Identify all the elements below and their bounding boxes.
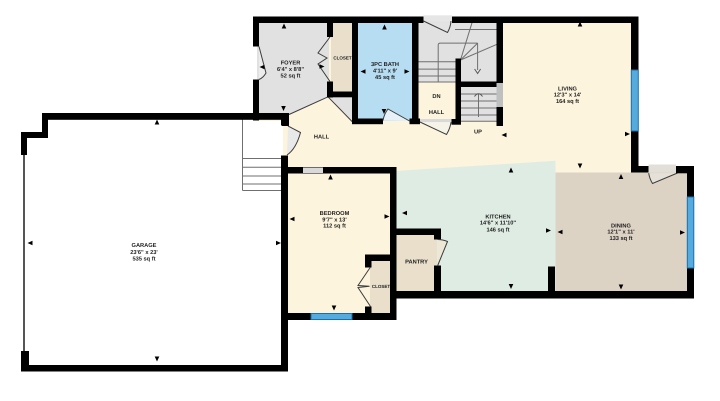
svg-text:133 sq ft: 133 sq ft (609, 235, 632, 242)
svg-text:KITCHEN: KITCHEN (485, 215, 510, 221)
svg-text:146 sq ft: 146 sq ft (486, 227, 509, 234)
svg-text:12'1" x 11': 12'1" x 11' (607, 230, 635, 236)
svg-text:14'6" x 11'10": 14'6" x 11'10" (480, 221, 517, 227)
svg-text:LIVING: LIVING (558, 86, 578, 92)
svg-text:FOYER: FOYER (281, 61, 301, 67)
svg-text:CLOSET: CLOSET (372, 284, 391, 289)
svg-text:9'7" x 13': 9'7" x 13' (322, 217, 347, 223)
svg-text:12'3" x 14': 12'3" x 14' (554, 93, 582, 99)
svg-text:HALL: HALL (314, 135, 330, 141)
svg-text:23'6" x 23': 23'6" x 23' (130, 250, 158, 256)
svg-text:3PC BATH: 3PC BATH (371, 62, 399, 68)
svg-text:BEDROOM: BEDROOM (320, 211, 350, 217)
svg-text:535 sq ft: 535 sq ft (132, 255, 155, 262)
svg-text:DN: DN (432, 94, 440, 100)
svg-text:45 sq ft: 45 sq ft (375, 74, 395, 81)
svg-text:CLOSET: CLOSET (333, 56, 352, 61)
svg-text:UP: UP (474, 130, 482, 136)
svg-text:52 sq ft: 52 sq ft (281, 72, 301, 79)
svg-text:4'11" x 9': 4'11" x 9' (373, 69, 398, 75)
svg-text:HALL: HALL (429, 110, 445, 116)
svg-text:6'4" x 8'8": 6'4" x 8'8" (277, 67, 304, 73)
svg-text:PANTRY: PANTRY (405, 260, 428, 266)
svg-text:112 sq ft: 112 sq ft (323, 223, 346, 230)
svg-text:164 sq ft: 164 sq ft (556, 98, 579, 105)
svg-text:GARAGE: GARAGE (132, 243, 157, 249)
